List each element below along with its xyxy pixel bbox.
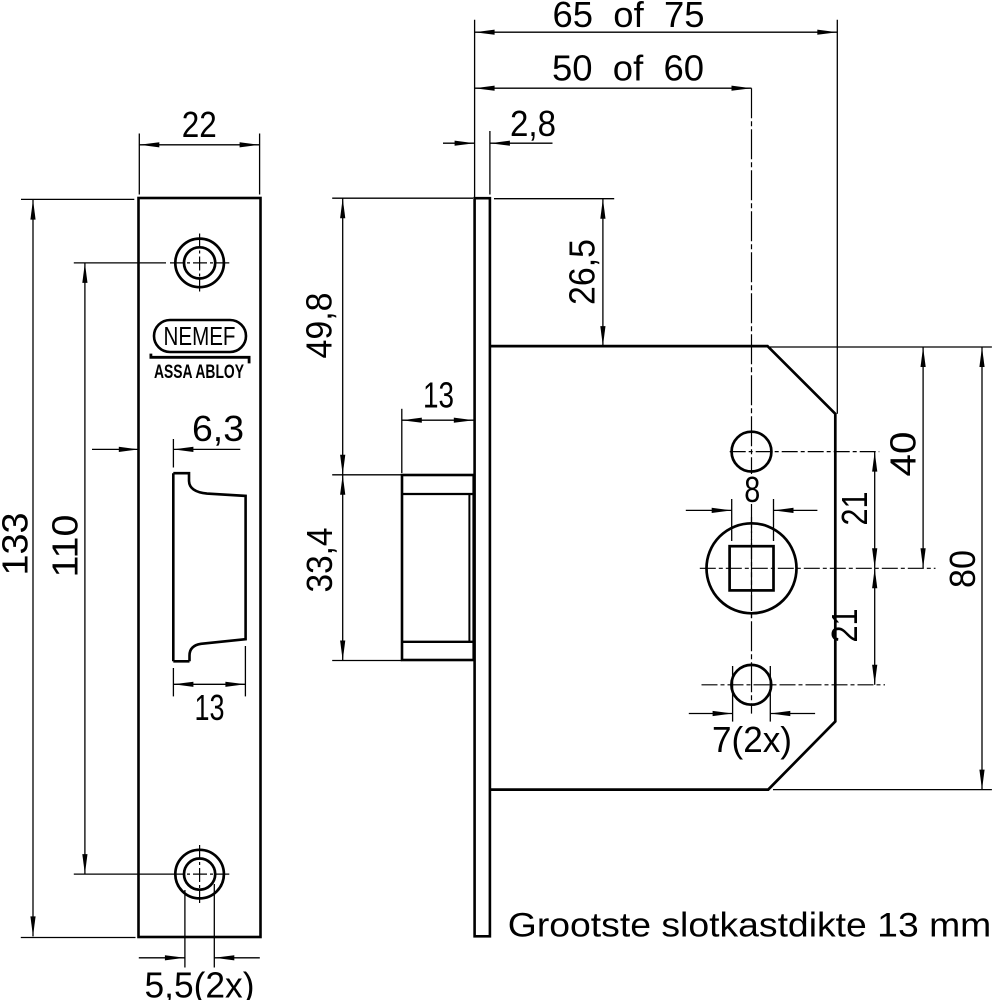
svg-text:ASSA ABLOY: ASSA ABLOY — [154, 362, 244, 383]
svg-text:40: 40 — [883, 432, 924, 477]
svg-text:6,3: 6,3 — [192, 408, 244, 449]
svg-text:7(2x): 7(2x) — [712, 719, 792, 760]
svg-text:2,8: 2,8 — [510, 103, 556, 144]
svg-text:110: 110 — [45, 515, 86, 578]
svg-text:22: 22 — [182, 104, 217, 145]
svg-text:Grootste slotkastdikte 13 mm: Grootste slotkastdikte 13 mm — [508, 906, 992, 944]
svg-text:21: 21 — [824, 609, 865, 643]
svg-text:13: 13 — [423, 375, 454, 416]
svg-text:49,8: 49,8 — [299, 293, 340, 359]
svg-text:8: 8 — [744, 469, 760, 510]
svg-text:133: 133 — [0, 513, 36, 576]
svg-text:80: 80 — [942, 550, 983, 588]
svg-text:21: 21 — [834, 492, 875, 526]
svg-text:33,4: 33,4 — [299, 528, 340, 593]
svg-text:50 of 60: 50 of 60 — [552, 47, 704, 88]
svg-text:NEMEF: NEMEF — [164, 321, 236, 351]
svg-text:5,5(2x): 5,5(2x) — [145, 965, 255, 1000]
svg-text:26,5: 26,5 — [562, 239, 603, 305]
svg-text:65 of 75: 65 of 75 — [553, 0, 705, 35]
svg-text:13: 13 — [195, 687, 225, 728]
